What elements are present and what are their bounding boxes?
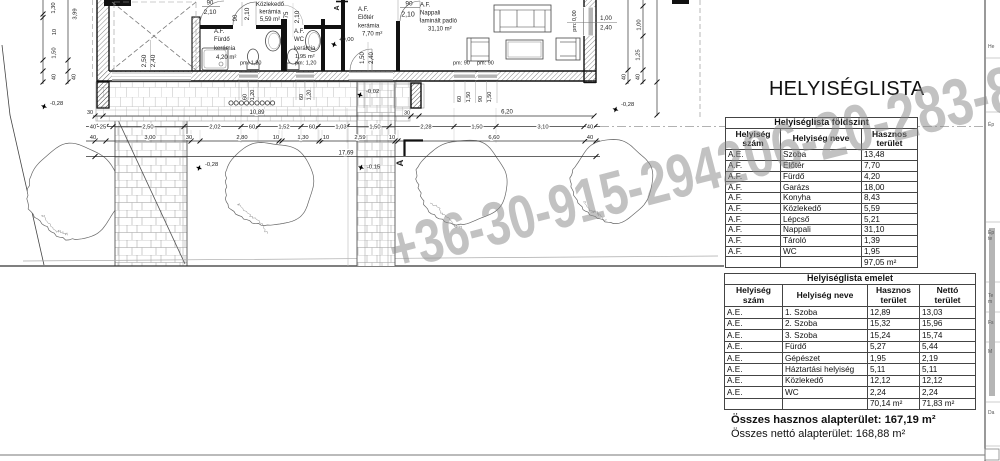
svg-text:06-20-283-88: 06-20-283-88 [735,43,1000,193]
svg-text:+36-30-915-2942: +36-30-915-2942 [381,125,753,284]
